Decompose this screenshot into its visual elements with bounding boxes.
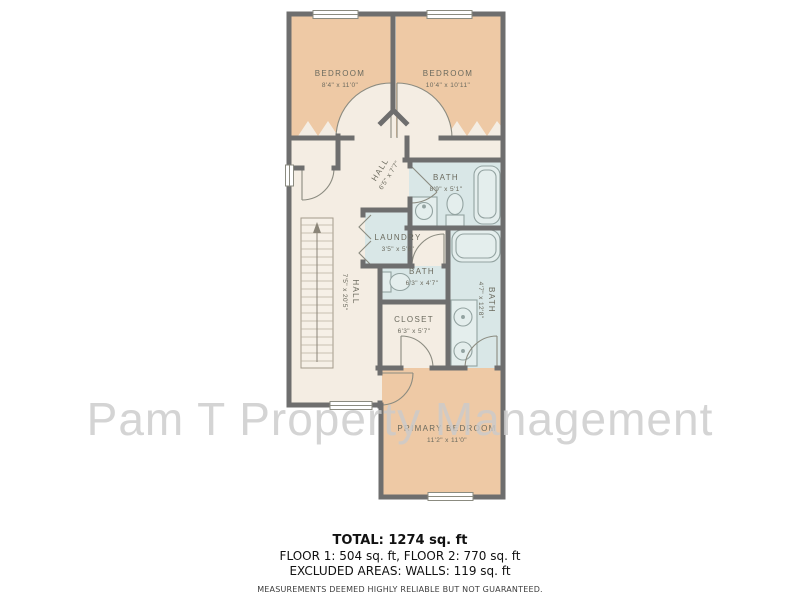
toilet-icon (447, 194, 463, 215)
total-area-text: TOTAL: 1274 sq. ft (0, 533, 800, 548)
watermark-text: Pam T Property Management (0, 392, 800, 446)
svg-text:4'7" x 12'8": 4'7" x 12'8" (477, 282, 484, 319)
floor-plan-page: BEDROOM 8'4" x 11'0" BEDROOM 10'4" x 10'… (0, 0, 800, 600)
floor-areas-text: FLOOR 1: 504 sq. ft, FLOOR 2: 770 sq. ft (0, 549, 800, 563)
svg-text:BEDROOM: BEDROOM (423, 69, 473, 78)
svg-text:7'5" x 20'5": 7'5" x 20'5" (341, 274, 348, 311)
staircase (301, 218, 333, 368)
svg-text:BATH: BATH (487, 287, 496, 313)
svg-text:6'3" x 5'7": 6'3" x 5'7" (398, 328, 431, 335)
sink-vanity-icon (411, 197, 437, 226)
double-vanity-icon (451, 300, 477, 366)
svg-text:10'4" x 10'11": 10'4" x 10'11" (426, 82, 471, 89)
floor-plan-drawing: BEDROOM 8'4" x 11'0" BEDROOM 10'4" x 10'… (0, 0, 800, 600)
svg-text:BATH: BATH (433, 173, 459, 182)
svg-text:3'5" x 5'6": 3'5" x 5'6" (382, 246, 415, 253)
svg-text:BATH: BATH (409, 267, 435, 276)
svg-text:HALL: HALL (351, 279, 360, 304)
excluded-areas-text: EXCLUDED AREAS: WALLS: 119 sq. ft (0, 564, 800, 578)
area-summary: TOTAL: 1274 sq. ft FLOOR 1: 504 sq. ft, … (0, 533, 800, 594)
svg-text:8'9" x 5'1": 8'9" x 5'1" (430, 186, 463, 193)
svg-text:CLOSET: CLOSET (394, 315, 434, 324)
disclaimer-text: MEASUREMENTS DEEMED HIGHLY RELIABLE BUT … (0, 585, 800, 594)
svg-text:6'3" x 4'7": 6'3" x 4'7" (406, 280, 439, 287)
bathtub-icon (452, 230, 500, 262)
svg-text:8'4" x 11'0": 8'4" x 11'0" (322, 82, 359, 89)
svg-text:LAUNDRY: LAUNDRY (374, 233, 421, 242)
svg-text:BEDROOM: BEDROOM (315, 69, 365, 78)
